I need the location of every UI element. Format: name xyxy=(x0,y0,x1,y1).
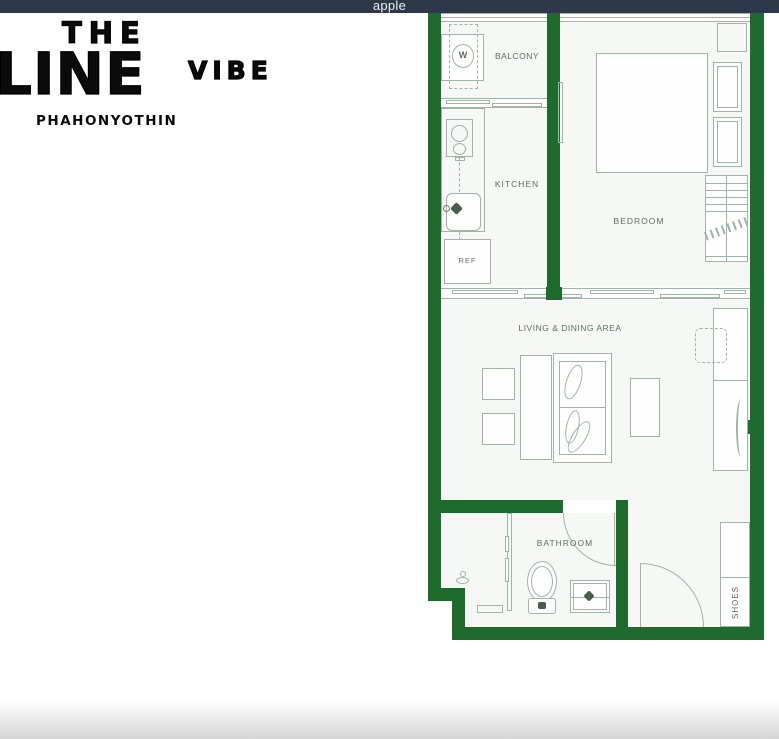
bedroom-top-window-line xyxy=(560,17,750,18)
bedroom-shelf xyxy=(717,23,747,52)
glass-pane xyxy=(590,290,654,294)
wall-mid-stub xyxy=(546,287,562,300)
nightstand-top-inner xyxy=(717,66,738,108)
wall-bathroom-top xyxy=(428,500,563,513)
nightstand-bottom-inner xyxy=(717,121,738,163)
side-table xyxy=(630,378,660,437)
balcony-label: BALCONY xyxy=(489,51,545,61)
logo-word-line: LINE xyxy=(0,40,146,108)
shower-head-base xyxy=(456,577,469,584)
washer-label: W xyxy=(452,50,474,60)
bathroom-label: BATHROOM xyxy=(533,538,597,548)
window-pane xyxy=(492,103,542,107)
kitchen-sink xyxy=(446,193,481,231)
logo-word-vibe: VIBE xyxy=(188,56,273,85)
page-bottom-edge xyxy=(0,700,779,739)
shower-partition-panel xyxy=(505,558,509,582)
wall-bathroom-right xyxy=(616,500,628,627)
stove-knob xyxy=(455,157,465,161)
living-dining-label: LIVING & DINING AREA xyxy=(513,323,627,333)
stove-burner-small xyxy=(453,143,466,155)
shoe-cabinet-divider xyxy=(720,577,750,578)
dining-chair-top xyxy=(482,368,515,400)
wall-right xyxy=(750,13,764,640)
counter-centerline xyxy=(459,157,460,192)
sofa-cushion-divider xyxy=(559,407,606,408)
screenshot-canvas: apple THE LINE VIBE PHAHONYOTHIN xyxy=(0,0,779,739)
tv-cabinet-divider xyxy=(713,380,748,381)
shoe-cabinet-label-wrap: SHOES xyxy=(718,580,752,626)
kitchen-label: KITCHEN xyxy=(490,179,544,189)
tv xyxy=(736,399,746,457)
shower-curb xyxy=(477,605,503,613)
shoe-cabinet-label: SHOES xyxy=(731,586,740,619)
logo-subtitle: PHAHONYOTHIN xyxy=(36,113,177,129)
balcony-top-window-line xyxy=(441,17,547,18)
toilet-flush xyxy=(538,602,546,609)
optional-unit-dashed xyxy=(695,328,727,363)
window-pane xyxy=(446,100,490,104)
dining-table xyxy=(520,355,552,460)
stove-burner-large xyxy=(451,125,468,142)
wall-kitchen-bedroom xyxy=(547,13,560,300)
refrigerator-label: REF xyxy=(444,256,491,265)
sink-faucet xyxy=(443,205,450,212)
wall-bottom xyxy=(452,627,764,640)
outside-patch xyxy=(441,601,452,627)
dining-chair-bottom xyxy=(482,413,515,445)
toilet-seat xyxy=(531,566,553,597)
wardrobe-divider xyxy=(726,175,727,262)
browser-title-bar: apple xyxy=(0,0,779,13)
shower-partition-panel xyxy=(505,536,509,552)
glass-pane xyxy=(724,290,746,294)
bed xyxy=(596,53,708,173)
bedroom-door-jamb xyxy=(558,82,563,143)
page-title: apple xyxy=(0,0,779,13)
glass-pane xyxy=(452,290,518,294)
bedroom-label: BEDROOM xyxy=(611,216,667,226)
glass-pane xyxy=(660,294,720,298)
